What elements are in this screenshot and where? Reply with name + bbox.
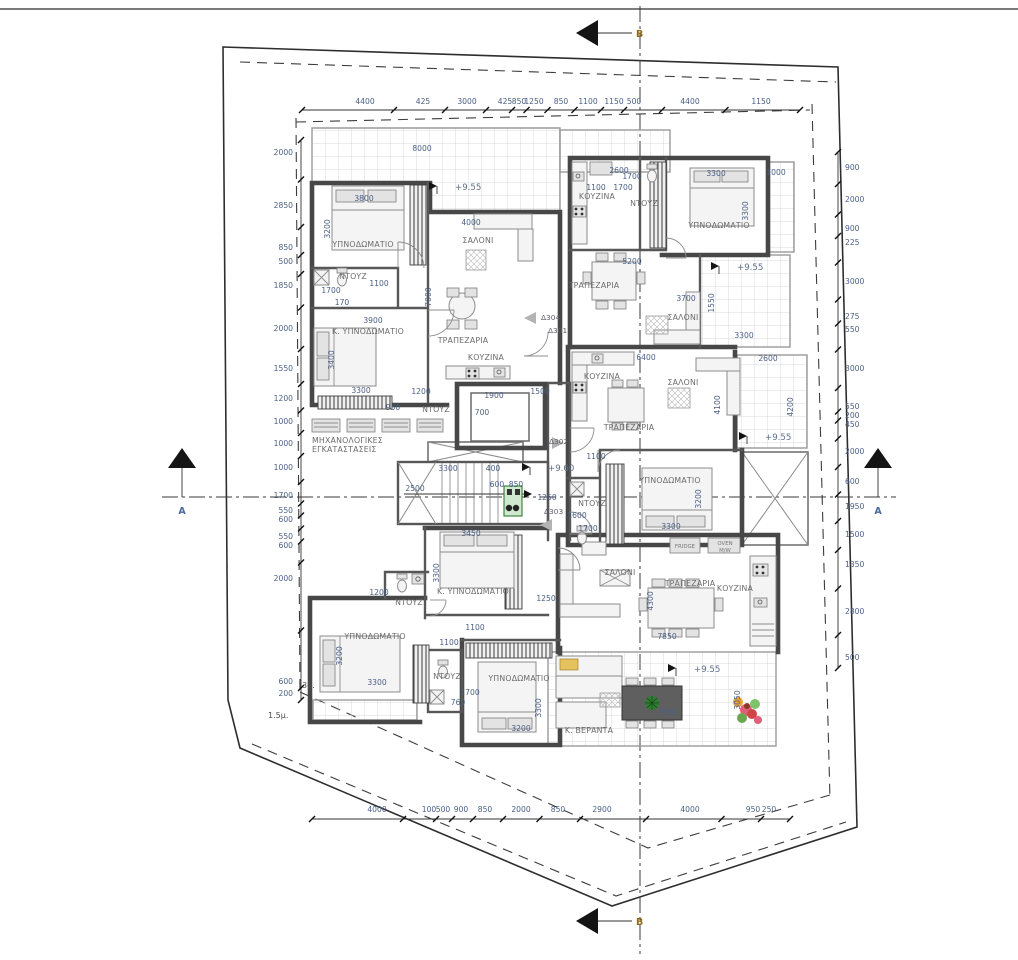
dimension-label: 1100 <box>578 97 597 106</box>
dimension-label: 850 <box>551 805 566 814</box>
dimension-label: 6400 <box>636 353 655 362</box>
dimension-label: 550 <box>845 325 860 334</box>
dimension-label: 250 <box>762 805 777 814</box>
dimension-label: 4000 <box>680 805 699 814</box>
dimension-label: 1700 <box>613 183 632 192</box>
room-label: ΝΤΟΥΖ <box>630 199 658 208</box>
dimension-label: 600 <box>845 477 860 486</box>
dimension-label: 1100 <box>586 183 605 192</box>
dimension-label: 450 <box>845 420 860 429</box>
dimension-label: 1000 <box>274 417 293 426</box>
dimension-label: 1000 <box>274 439 293 448</box>
dimension-label: 1700 <box>460 688 479 697</box>
dimension-label: 4100 <box>713 395 722 414</box>
dimension-label: 2000 <box>845 195 864 204</box>
room-label: Κ. ΒΕΡΑΝΤΑ <box>565 726 614 735</box>
section-letter-b-bottom: B <box>636 917 643 928</box>
dimension-label: 275 <box>845 312 860 321</box>
room-label: ΝΤΟΥΖ <box>433 672 461 681</box>
dimension-label: 3400 <box>327 350 336 369</box>
kitchen-counter <box>572 162 612 244</box>
room-label: ΣΑΛΟΝΙ <box>604 568 635 577</box>
dimension-label: 1900 <box>484 391 503 400</box>
dimension-label: 2850 <box>274 201 293 210</box>
section-marker-b-top <box>576 20 632 46</box>
dimension-label: 950 <box>386 403 401 412</box>
bed <box>440 532 514 588</box>
dimension-label: 3300 <box>741 201 750 220</box>
dimension-label: 550 <box>279 532 294 541</box>
dimension-label: 850 <box>554 97 569 106</box>
dimension-label: 3800 <box>354 194 373 203</box>
kitchen-counter <box>446 366 510 379</box>
dimension-label: 3900 <box>363 316 382 325</box>
dimension-label: 550 <box>279 506 294 515</box>
room-label: ΥΠΝΟΔΩΜΑΤΙΟ <box>638 476 700 485</box>
room-label: ΥΠΝΟΔΩΜΑΤΙΟ <box>331 240 393 249</box>
dimension-label: 4300 <box>646 591 655 610</box>
sofa <box>560 542 630 617</box>
dimension-label: 1550 <box>274 364 293 373</box>
room-label: ΚΟΥΖΙΝΑ <box>717 584 754 593</box>
section-marker-a-left <box>168 448 196 497</box>
dimension-label: 3300 <box>734 331 753 340</box>
level-label: +9.60 <box>548 464 574 474</box>
appliance-label: OVEN <box>717 541 732 547</box>
dimension-label: 1700 <box>622 172 641 181</box>
dimension-label: 600 <box>279 541 294 550</box>
dimension-label: 1600 <box>567 511 586 520</box>
room-label: ΤΡΑΠΕΖΑΡΙΑ <box>664 579 716 588</box>
dimension-label: 8000 <box>412 144 431 153</box>
room-label: ΝΤΟΥΖ <box>422 405 450 414</box>
dimension-label: 1100 <box>465 623 484 632</box>
dimension-label: 3200 <box>694 489 703 508</box>
dimension-label: 1500 <box>530 387 549 396</box>
dimension-label: 1000 <box>766 168 785 177</box>
room-label: Κ. ΥΠΝΟΔΩΜΑΤΙΟ <box>437 587 509 596</box>
dimension-label: 425 <box>416 97 431 106</box>
room-label: Κ. ΥΠΝΟΔΩΜΑΤΙΟ <box>332 327 404 336</box>
bed <box>314 328 376 386</box>
dimension-label: 1100 <box>369 279 388 288</box>
dimension-label: 1250 <box>537 493 556 502</box>
room-label: ΣΑΛΟΝΙ <box>667 313 698 322</box>
room-label: ΝΤΟΥΖ <box>339 272 367 281</box>
room-label: ΕΓΚΑΤΑΣΤΑΣΕΙΣ <box>312 445 377 454</box>
dimension-label: 225 <box>845 238 860 247</box>
dimension-label: 2000 <box>845 447 864 456</box>
dimension-column-right: 9002000900225300027555030005502004502000… <box>835 149 864 671</box>
dimension-label: 600 <box>490 480 505 489</box>
dimension-label: 1000 <box>274 463 293 472</box>
level-label: +9.55 <box>765 433 791 443</box>
dimension-label: 1200 <box>274 394 293 403</box>
dimension-label: 7850 <box>657 632 676 641</box>
room-label: ΤΡΑΠΕΖΑΡΙΑ <box>437 336 489 345</box>
bed <box>320 636 400 692</box>
dimension-label: 5200 <box>622 257 641 266</box>
dimension-label: 7000 <box>424 287 433 306</box>
dimension-label: 1950 <box>845 502 864 511</box>
room-label: ΚΟΥΖΙΝΑ <box>584 372 621 381</box>
dimension-label: 3000 <box>845 364 864 373</box>
dimension-label: 200 <box>845 411 860 420</box>
dimension-label: 425 <box>498 97 513 106</box>
section-letter-b-top: B <box>636 29 643 40</box>
dimension-label: 500 <box>436 805 451 814</box>
level-label: +9.55 <box>455 183 481 193</box>
room-label: ΝΤΟΥΖ <box>395 598 423 607</box>
setback-label: 1.5μ. <box>268 711 288 720</box>
dimension-label: 100 <box>422 805 437 814</box>
dimension-label: 4200 <box>786 397 795 416</box>
dimension-label: 1700 <box>578 524 597 533</box>
dimension-label: 1250 <box>536 594 555 603</box>
section-marker-a-right <box>864 448 892 497</box>
toilet <box>397 574 407 592</box>
dimension-label: 3200 <box>323 219 332 238</box>
dimension-label: 1200 <box>369 588 388 597</box>
room-label: ΜΗΧΑΝΟΛΟΓΙΚΕΣ <box>312 436 383 445</box>
door-tag: Δ303 <box>544 507 563 516</box>
dimension-row-top: 4400425300042585012508501100115050044001… <box>299 97 803 113</box>
section-letter-a-left: A <box>178 506 186 517</box>
dimension-label: 2500 <box>405 484 424 493</box>
veranda-bottom-left <box>313 700 417 720</box>
dimension-label: 2000 <box>274 574 293 583</box>
dimension-label: 1550 <box>707 293 716 312</box>
room-label: ΥΠΝΟΔΩΜΑΤΙΟ <box>343 632 405 641</box>
dimension-label: 4000 <box>367 805 386 814</box>
outdoor-dining-table <box>622 678 682 728</box>
dimension-label: 4000 <box>461 218 480 227</box>
level-flag-icon <box>522 463 530 471</box>
level-label: +9.55 <box>737 263 763 273</box>
dimension-label: 1200 <box>411 387 430 396</box>
dimension-label: 1150 <box>604 97 623 106</box>
dimension-label: 3300 <box>367 678 386 687</box>
dimension-label: 850 <box>509 480 524 489</box>
dimension-label: 1850 <box>274 281 293 290</box>
room-label: ΣΑΛΟΝΙ <box>462 236 493 245</box>
toilet <box>647 164 657 182</box>
appliance-label: M/W <box>719 548 731 554</box>
dimension-label: 700 <box>475 408 490 417</box>
dimension-label: 3000 <box>845 277 864 286</box>
room-label: ΚΟΥΖΙΝΑ <box>468 353 505 362</box>
dimension-label: 1150 <box>751 97 770 106</box>
dimension-label: 7850 <box>657 708 676 717</box>
staircase <box>398 462 548 524</box>
dimension-label: 550 <box>845 402 860 411</box>
dimension-label: 500 <box>279 257 294 266</box>
room-label: ΤΡΑΠΕΖΑΡΙΑ <box>603 423 655 432</box>
dimension-label: 900 <box>845 224 860 233</box>
room-label: ΤΡΑΠΕΖΑΡΙΑ <box>568 281 620 290</box>
dimension-label: 1350 <box>845 560 864 569</box>
dimension-label: 760 <box>451 698 466 707</box>
appliance-label: FRIDGE <box>675 544 696 550</box>
bed <box>478 662 536 732</box>
dimension-label: 3300 <box>351 386 370 395</box>
dimension-label: 850 <box>279 243 294 252</box>
dimension-label: 3300 <box>432 563 441 582</box>
dimension-label: 1100 <box>586 452 605 461</box>
dimension-label: 850 <box>478 805 493 814</box>
door-tag: Δ302 <box>549 437 568 446</box>
elevator-symbol <box>504 486 522 516</box>
room-label: ΥΠΝΟΔΩΜΑΤΙΟ <box>687 221 749 230</box>
dimension-label: 3050 <box>733 690 742 709</box>
dining-table-round <box>447 288 477 329</box>
dimension-label: 500 <box>627 97 642 106</box>
section-letter-a-right: A <box>874 506 882 517</box>
room-label: ΝΤΟΥΖ <box>578 499 606 508</box>
dimension-label: 3300 <box>661 522 680 531</box>
dimension-label: 1500 <box>845 530 864 539</box>
dimension-label: 2000 <box>511 805 530 814</box>
dimension-label: 3300 <box>438 464 457 473</box>
setback-label: 3μ. <box>302 681 315 690</box>
dimension-label: 2600 <box>758 354 777 363</box>
dimension-row-bottom: 4000100500900850200085029004000950250 <box>309 805 793 822</box>
door-tag: Δ304 <box>541 313 560 322</box>
dimension-label: 3200 <box>511 724 530 733</box>
dimension-label: 600 <box>279 677 294 686</box>
dimension-label: 3450 <box>461 529 480 538</box>
dimension-label: 4400 <box>680 97 699 106</box>
dimension-label: 1700 <box>321 286 340 295</box>
dimension-label: 950 <box>746 805 761 814</box>
dimension-label: 3300 <box>706 169 725 178</box>
dimension-label: 200 <box>279 689 294 698</box>
floor-plan-drawing: 4400425300042585012508501100115050044001… <box>0 0 1018 960</box>
dimension-label: 2000 <box>274 324 293 333</box>
dimension-label: 400 <box>486 464 501 473</box>
ac-units <box>312 419 443 432</box>
dimension-label: 2000 <box>274 148 293 157</box>
dimension-label: 2800 <box>845 607 864 616</box>
dimension-label: 500 <box>845 653 860 662</box>
dimension-label: 2900 <box>592 805 611 814</box>
dimension-label: 600 <box>279 515 294 524</box>
level-label: +9.55 <box>694 665 720 675</box>
room-label: ΣΑΛΟΝΙ <box>667 378 698 387</box>
dimension-label: 3700 <box>676 294 695 303</box>
dimension-label: 900 <box>845 163 860 172</box>
dimension-label: 900 <box>454 805 469 814</box>
dimension-label: 3000 <box>457 97 476 106</box>
dimension-label: 4400 <box>355 97 374 106</box>
room-label: ΥΠΝΟΔΩΜΑΤΙΟ <box>487 674 549 683</box>
section-marker-b-bottom <box>576 908 632 934</box>
dimension-label: 170 <box>335 298 350 307</box>
dimension-label: 1700 <box>274 491 293 500</box>
dimension-label: 1100 <box>439 638 458 647</box>
door-tag: Δ301 <box>548 326 567 335</box>
room-label: ΚΟΥΖΙΝΑ <box>579 192 616 201</box>
dimension-label: 1250 <box>524 97 543 106</box>
dimension-label: 3300 <box>534 698 543 717</box>
dimension-label: 3200 <box>335 646 344 665</box>
